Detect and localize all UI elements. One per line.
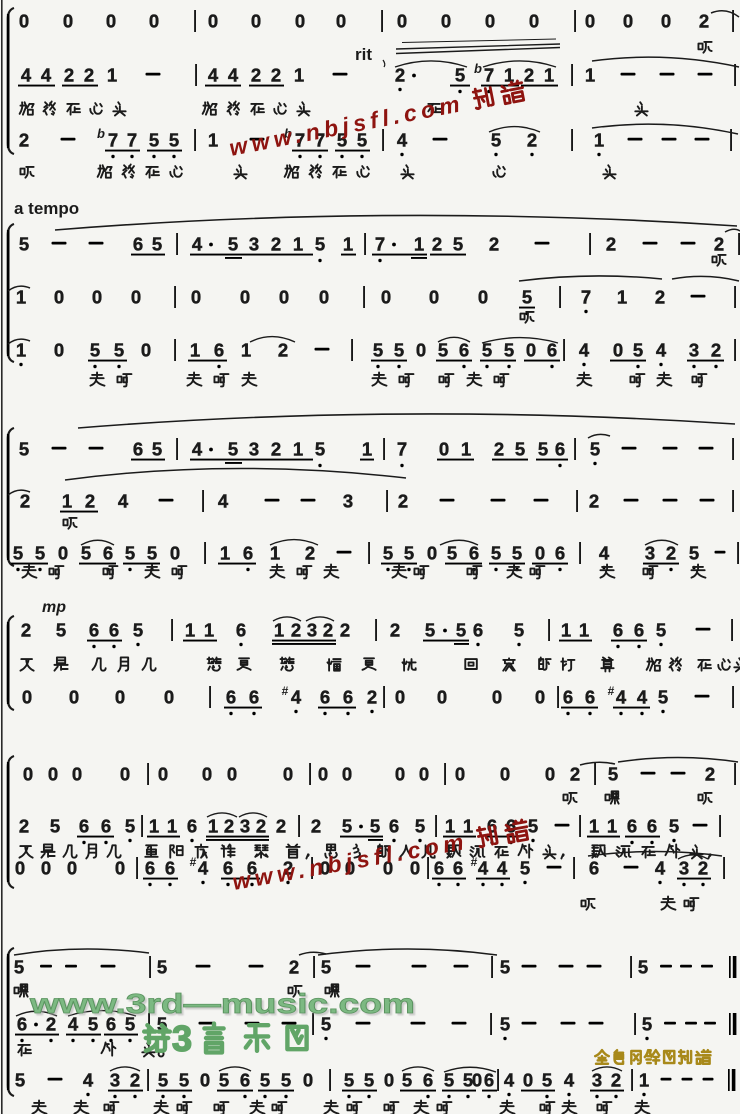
- svg-text:6: 6: [343, 687, 353, 708]
- svg-text:2: 2: [276, 816, 286, 837]
- svg-text:4: 4: [478, 858, 489, 879]
- svg-text:0: 0: [15, 858, 25, 879]
- svg-text:0: 0: [535, 543, 545, 564]
- svg-text:0: 0: [416, 340, 426, 361]
- svg-text:1: 1: [208, 816, 218, 837]
- svg-text:2: 2: [524, 65, 534, 86]
- svg-text:5: 5: [438, 340, 448, 361]
- svg-text:5: 5: [538, 439, 548, 460]
- svg-text:0: 0: [115, 858, 125, 879]
- svg-text:0: 0: [54, 340, 64, 361]
- svg-text:#: #: [190, 855, 197, 869]
- svg-text:5: 5: [500, 957, 510, 978]
- svg-text:2: 2: [278, 340, 288, 361]
- svg-text:0: 0: [120, 764, 130, 785]
- svg-text:1: 1: [544, 65, 554, 86]
- svg-text:4: 4: [228, 65, 239, 86]
- svg-text:5: 5: [658, 687, 668, 708]
- svg-text:5: 5: [179, 1070, 189, 1091]
- svg-text:2: 2: [19, 816, 29, 837]
- svg-text:4: 4: [599, 543, 610, 564]
- svg-text:2: 2: [395, 65, 405, 86]
- svg-text:5: 5: [364, 1070, 374, 1091]
- svg-text:1: 1: [274, 620, 284, 641]
- svg-text:6: 6: [17, 1014, 27, 1035]
- svg-text:0: 0: [441, 11, 451, 32]
- svg-text:4: 4: [83, 1070, 94, 1091]
- svg-text:6: 6: [101, 816, 111, 837]
- svg-text:4: 4: [41, 65, 52, 86]
- svg-text:5: 5: [455, 65, 465, 86]
- svg-text:3: 3: [307, 620, 317, 641]
- svg-text:6: 6: [389, 816, 399, 837]
- svg-text:6: 6: [226, 687, 236, 708]
- svg-text:4: 4: [397, 130, 408, 151]
- svg-text:1: 1: [617, 287, 627, 308]
- svg-text:1: 1: [343, 234, 353, 255]
- svg-text:2: 2: [224, 816, 234, 837]
- svg-text:5: 5: [125, 816, 135, 837]
- svg-text:1: 1: [190, 340, 200, 361]
- svg-text:1: 1: [204, 620, 214, 641]
- svg-text:2: 2: [84, 65, 94, 86]
- svg-text:0: 0: [439, 439, 449, 460]
- svg-text:0: 0: [54, 287, 64, 308]
- svg-text:5: 5: [425, 620, 435, 641]
- svg-text:1: 1: [639, 1070, 649, 1091]
- svg-text:1: 1: [208, 130, 218, 151]
- svg-text:0: 0: [535, 687, 545, 708]
- svg-text:5: 5: [19, 439, 29, 460]
- svg-text:5: 5: [228, 234, 238, 255]
- svg-text:7: 7: [127, 130, 137, 151]
- svg-text:2: 2: [271, 65, 281, 86]
- svg-text:4: 4: [504, 1070, 515, 1091]
- svg-text:5: 5: [500, 1014, 510, 1035]
- svg-text:7: 7: [397, 439, 407, 460]
- svg-text:0: 0: [227, 764, 237, 785]
- svg-text:4: 4: [218, 491, 229, 512]
- svg-text:5: 5: [504, 340, 514, 361]
- svg-text:0: 0: [58, 543, 68, 564]
- svg-text:6: 6: [469, 543, 479, 564]
- svg-text:0: 0: [429, 287, 439, 308]
- svg-text:0: 0: [202, 764, 212, 785]
- svg-text:3: 3: [172, 1018, 192, 1059]
- svg-text:0: 0: [295, 11, 305, 32]
- svg-text:6: 6: [585, 687, 595, 708]
- svg-text:3: 3: [645, 543, 655, 564]
- svg-text:0: 0: [131, 287, 141, 308]
- svg-text:5: 5: [669, 816, 679, 837]
- svg-text:5: 5: [14, 957, 24, 978]
- svg-text:2: 2: [527, 130, 537, 151]
- svg-text:5: 5: [514, 620, 524, 641]
- svg-text:2: 2: [570, 764, 580, 785]
- svg-text:1: 1: [241, 340, 251, 361]
- svg-text:5: 5: [50, 816, 60, 837]
- svg-text:0: 0: [92, 287, 102, 308]
- svg-text:2: 2: [256, 816, 266, 837]
- svg-text:3: 3: [249, 439, 259, 460]
- svg-text:0: 0: [115, 687, 125, 708]
- svg-text:5: 5: [56, 620, 66, 641]
- svg-text:5: 5: [260, 1070, 270, 1091]
- svg-text:5: 5: [344, 1070, 354, 1091]
- svg-text:0: 0: [72, 764, 82, 785]
- svg-text:2: 2: [340, 620, 350, 641]
- svg-text:6: 6: [555, 543, 565, 564]
- svg-text:5: 5: [456, 620, 466, 641]
- svg-text:0: 0: [319, 287, 329, 308]
- svg-text:6: 6: [89, 620, 99, 641]
- svg-text:6: 6: [103, 543, 113, 564]
- svg-text:4: 4: [192, 439, 203, 460]
- svg-text:5: 5: [689, 543, 699, 564]
- svg-text:0: 0: [67, 858, 77, 879]
- svg-text:6: 6: [145, 858, 155, 879]
- svg-text:5: 5: [228, 439, 238, 460]
- svg-text:0: 0: [63, 11, 73, 32]
- svg-text:4: 4: [21, 65, 32, 86]
- svg-text:2: 2: [606, 234, 616, 255]
- svg-text:6: 6: [249, 687, 259, 708]
- svg-text:3: 3: [343, 491, 353, 512]
- svg-text:0: 0: [395, 687, 405, 708]
- svg-text:5: 5: [633, 340, 643, 361]
- svg-text:5: 5: [453, 234, 463, 255]
- svg-text:1: 1: [293, 439, 303, 460]
- svg-text:1: 1: [220, 543, 230, 564]
- svg-text:0: 0: [419, 764, 429, 785]
- svg-text:2: 2: [666, 543, 676, 564]
- svg-text:0: 0: [200, 1070, 210, 1091]
- svg-text:0: 0: [69, 687, 79, 708]
- svg-text:6: 6: [133, 234, 143, 255]
- svg-text:6: 6: [243, 543, 253, 564]
- svg-text:0: 0: [585, 11, 595, 32]
- svg-text:#: #: [608, 684, 615, 698]
- svg-text:7: 7: [581, 287, 591, 308]
- svg-text:b: b: [97, 126, 105, 141]
- svg-text:www.3rd—music.com: www.3rd—music.com: [29, 988, 415, 1019]
- svg-text:5: 5: [383, 543, 393, 564]
- svg-text:3: 3: [689, 340, 699, 361]
- svg-text:1: 1: [270, 543, 280, 564]
- svg-text:5: 5: [125, 543, 135, 564]
- svg-text:2: 2: [698, 858, 708, 879]
- svg-text:5: 5: [152, 234, 162, 255]
- svg-text:0: 0: [478, 287, 488, 308]
- svg-text:0: 0: [164, 687, 174, 708]
- svg-text:2: 2: [271, 439, 281, 460]
- svg-text:5: 5: [81, 543, 91, 564]
- svg-text:6: 6: [109, 620, 119, 641]
- svg-text:4: 4: [616, 687, 627, 708]
- svg-text:0: 0: [523, 1070, 533, 1091]
- svg-text:2: 2: [130, 1070, 140, 1091]
- svg-text:5: 5: [404, 543, 414, 564]
- svg-text:6: 6: [634, 620, 644, 641]
- svg-text:6: 6: [187, 816, 197, 837]
- svg-text:5: 5: [491, 130, 501, 151]
- svg-text:6: 6: [589, 858, 599, 879]
- svg-text:5: 5: [149, 130, 159, 151]
- svg-text:2: 2: [85, 491, 95, 512]
- svg-text:0: 0: [141, 340, 151, 361]
- svg-text:2: 2: [291, 620, 301, 641]
- svg-text:5: 5: [542, 1070, 552, 1091]
- svg-text:1: 1: [149, 816, 159, 837]
- svg-text:1: 1: [589, 816, 599, 837]
- svg-text:5: 5: [157, 957, 167, 978]
- svg-text:0: 0: [397, 11, 407, 32]
- svg-text:1: 1: [62, 491, 72, 512]
- svg-text:b: b: [474, 61, 482, 76]
- svg-text:6: 6: [434, 858, 444, 879]
- svg-text:4: 4: [118, 491, 129, 512]
- svg-text:4: 4: [655, 858, 666, 879]
- svg-text:5: 5: [35, 543, 45, 564]
- svg-text:0: 0: [545, 764, 555, 785]
- svg-text:0: 0: [240, 287, 250, 308]
- svg-text:7: 7: [484, 65, 494, 86]
- svg-text:5: 5: [133, 620, 143, 641]
- svg-text:2: 2: [311, 816, 321, 837]
- svg-text:0: 0: [395, 764, 405, 785]
- svg-text:5: 5: [491, 543, 501, 564]
- svg-text:4: 4: [192, 234, 203, 255]
- svg-text:1: 1: [167, 816, 177, 837]
- svg-text:5: 5: [642, 1014, 652, 1035]
- svg-text:0: 0: [500, 764, 510, 785]
- svg-text:2: 2: [589, 491, 599, 512]
- svg-text:1: 1: [594, 130, 604, 151]
- svg-text:5: 5: [394, 340, 404, 361]
- svg-text:1: 1: [16, 340, 26, 361]
- svg-text:0: 0: [170, 543, 180, 564]
- svg-text:5: 5: [147, 543, 157, 564]
- svg-text:mp: mp: [42, 599, 66, 616]
- svg-text:0: 0: [208, 11, 218, 32]
- svg-text:2: 2: [19, 130, 29, 151]
- svg-text:5: 5: [13, 543, 23, 564]
- svg-text:0: 0: [384, 1070, 394, 1091]
- svg-text:0: 0: [485, 11, 495, 32]
- svg-text:2: 2: [390, 620, 400, 641]
- svg-text:5: 5: [219, 1070, 229, 1091]
- svg-text:0: 0: [41, 858, 51, 879]
- svg-text:3: 3: [240, 816, 250, 837]
- svg-text:0: 0: [526, 340, 536, 361]
- svg-text:2: 2: [705, 764, 715, 785]
- svg-text:0: 0: [437, 687, 447, 708]
- svg-text:6: 6: [459, 340, 469, 361]
- svg-text:0: 0: [279, 287, 289, 308]
- svg-text:0: 0: [623, 11, 633, 32]
- svg-text:0: 0: [19, 11, 29, 32]
- svg-text:6: 6: [165, 858, 175, 879]
- svg-text:6: 6: [236, 620, 246, 641]
- svg-text:0: 0: [106, 11, 116, 32]
- svg-text:4: 4: [579, 340, 590, 361]
- svg-text:6: 6: [555, 439, 565, 460]
- svg-text:4: 4: [198, 858, 209, 879]
- svg-text:5: 5: [638, 957, 648, 978]
- svg-text:0: 0: [455, 764, 465, 785]
- svg-text:5: 5: [522, 287, 532, 308]
- svg-text:2: 2: [289, 957, 299, 978]
- svg-text:5: 5: [19, 234, 29, 255]
- svg-text:6: 6: [627, 816, 637, 837]
- svg-text:2: 2: [655, 287, 665, 308]
- svg-text:5: 5: [321, 957, 331, 978]
- svg-text:1: 1: [579, 620, 589, 641]
- svg-text:0: 0: [427, 543, 437, 564]
- svg-text:1: 1: [107, 65, 117, 86]
- svg-text:5: 5: [608, 764, 618, 785]
- svg-text:7: 7: [375, 234, 385, 255]
- svg-text:a tempo: a tempo: [14, 199, 79, 218]
- svg-text:1: 1: [561, 620, 571, 641]
- svg-text:2: 2: [489, 234, 499, 255]
- svg-text:5: 5: [444, 1070, 454, 1091]
- svg-text:rit: rit: [355, 45, 372, 64]
- svg-text:6: 6: [423, 1070, 433, 1091]
- svg-text:2: 2: [20, 491, 30, 512]
- svg-text:3: 3: [110, 1070, 120, 1091]
- svg-text:6: 6: [240, 1070, 250, 1091]
- svg-text:2: 2: [305, 543, 315, 564]
- svg-text:5: 5: [402, 1070, 412, 1091]
- svg-text:5: 5: [315, 439, 325, 460]
- svg-text:6: 6: [613, 620, 623, 641]
- svg-text:4: 4: [291, 687, 302, 708]
- svg-text:2: 2: [494, 439, 504, 460]
- svg-text:1: 1: [461, 439, 471, 460]
- svg-text:0: 0: [613, 340, 623, 361]
- svg-text:5: 5: [656, 620, 666, 641]
- svg-text:0: 0: [472, 1070, 482, 1091]
- svg-text:1: 1: [414, 234, 424, 255]
- svg-text:5: 5: [370, 816, 380, 837]
- svg-text:2: 2: [271, 234, 281, 255]
- svg-text:2: 2: [251, 65, 261, 86]
- svg-text:1: 1: [607, 816, 617, 837]
- svg-text:0: 0: [381, 287, 391, 308]
- svg-text:2: 2: [323, 620, 333, 641]
- svg-text:6: 6: [214, 340, 224, 361]
- svg-text:4: 4: [637, 687, 648, 708]
- svg-text:5: 5: [447, 543, 457, 564]
- svg-text:0: 0: [336, 11, 346, 32]
- svg-text:6: 6: [133, 439, 143, 460]
- svg-text:7: 7: [108, 130, 118, 151]
- svg-text:0: 0: [492, 687, 502, 708]
- svg-text:0: 0: [661, 11, 671, 32]
- svg-text:4: 4: [497, 858, 508, 879]
- svg-text:6: 6: [484, 1070, 494, 1091]
- svg-text:5: 5: [342, 816, 352, 837]
- svg-text:6: 6: [563, 687, 573, 708]
- svg-text:1: 1: [185, 620, 195, 641]
- svg-text:2: 2: [432, 234, 442, 255]
- svg-text:1: 1: [293, 234, 303, 255]
- svg-text:1: 1: [585, 65, 595, 86]
- svg-text:5: 5: [114, 340, 124, 361]
- svg-text:1: 1: [362, 439, 372, 460]
- svg-text:2: 2: [611, 1070, 621, 1091]
- svg-text:0: 0: [22, 687, 32, 708]
- svg-text:5: 5: [373, 340, 383, 361]
- svg-text:5: 5: [158, 1070, 168, 1091]
- svg-text:5: 5: [281, 1070, 291, 1091]
- svg-text:5: 5: [528, 816, 538, 837]
- svg-text:4: 4: [564, 1070, 575, 1091]
- svg-text:2: 2: [398, 491, 408, 512]
- svg-text:0: 0: [191, 287, 201, 308]
- svg-text:5: 5: [90, 340, 100, 361]
- svg-text:3: 3: [249, 234, 259, 255]
- svg-text:0: 0: [318, 764, 328, 785]
- svg-text:5: 5: [315, 234, 325, 255]
- svg-text:6: 6: [473, 620, 483, 641]
- svg-text:#: #: [471, 855, 478, 869]
- svg-text:5: 5: [590, 439, 600, 460]
- svg-text:5: 5: [169, 130, 179, 151]
- svg-text:0: 0: [23, 764, 33, 785]
- svg-text:6: 6: [320, 687, 330, 708]
- svg-text:5: 5: [515, 439, 525, 460]
- svg-text:0: 0: [158, 764, 168, 785]
- svg-text:2: 2: [711, 340, 721, 361]
- svg-text:2: 2: [64, 65, 74, 86]
- svg-text:4: 4: [208, 65, 219, 86]
- svg-text:5: 5: [512, 543, 522, 564]
- svg-text:2: 2: [699, 11, 709, 32]
- svg-text:4: 4: [656, 340, 667, 361]
- svg-text:6: 6: [453, 858, 463, 879]
- svg-text:2: 2: [714, 234, 724, 255]
- svg-text:6: 6: [647, 816, 657, 837]
- svg-text:6: 6: [79, 816, 89, 837]
- svg-text:#: #: [282, 684, 289, 698]
- svg-text:0: 0: [251, 11, 261, 32]
- svg-text:5: 5: [415, 816, 425, 837]
- svg-text:1: 1: [16, 287, 26, 308]
- svg-text:3: 3: [592, 1070, 602, 1091]
- svg-text:5: 5: [152, 439, 162, 460]
- svg-text:0: 0: [303, 1070, 313, 1091]
- svg-text:0: 0: [149, 11, 159, 32]
- svg-text:0: 0: [48, 764, 58, 785]
- svg-text:2: 2: [367, 687, 377, 708]
- svg-text:3: 3: [679, 858, 689, 879]
- svg-text:2: 2: [21, 620, 31, 641]
- svg-text:5: 5: [520, 858, 530, 879]
- svg-text:0: 0: [283, 764, 293, 785]
- svg-text:1: 1: [294, 65, 304, 86]
- svg-text:0: 0: [529, 11, 539, 32]
- svg-text:5: 5: [15, 1070, 25, 1091]
- svg-text:0: 0: [342, 764, 352, 785]
